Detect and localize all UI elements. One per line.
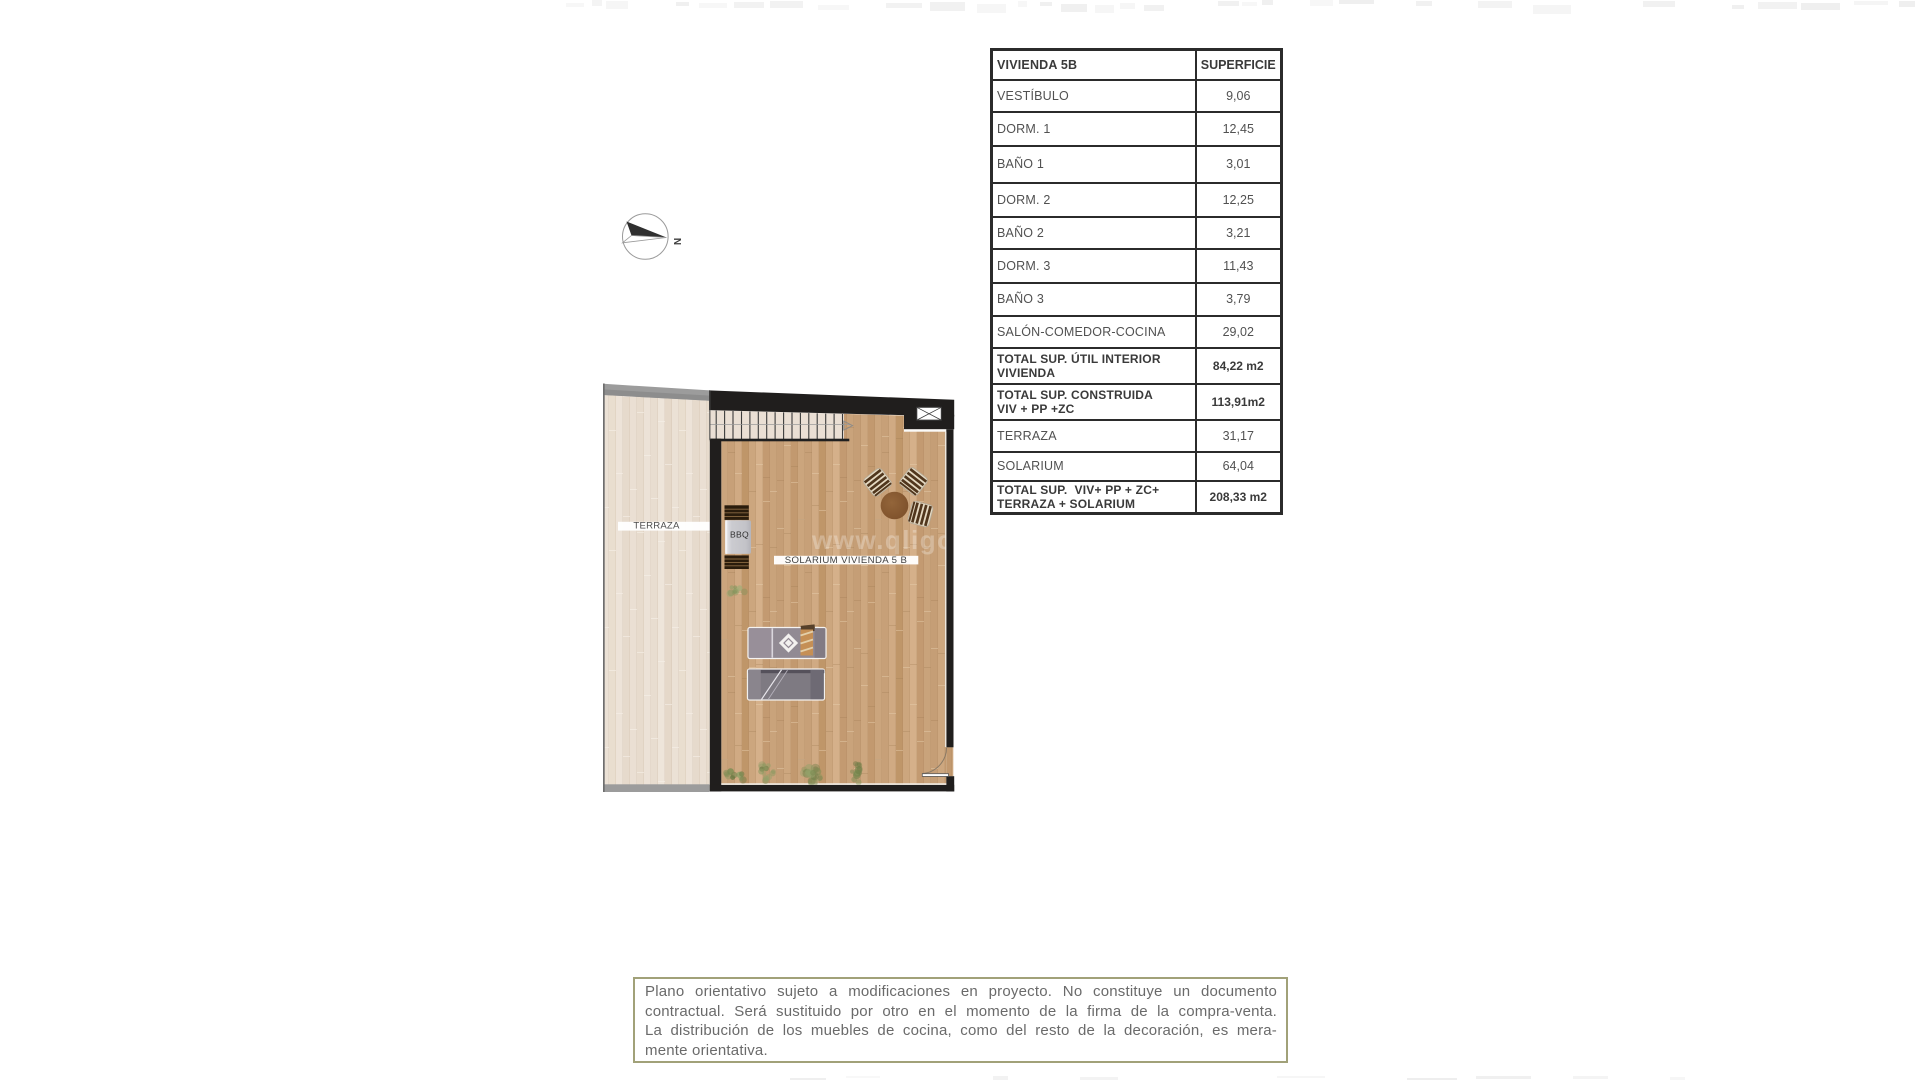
svg-text:SOLARIUM VIVIENDA 5 B: SOLARIUM VIVIENDA 5 B [785, 555, 908, 566]
svg-text:TERRAZA: TERRAZA [633, 521, 680, 532]
svg-text:N: N [671, 238, 682, 245]
svg-text:BBQ: BBQ [730, 530, 749, 540]
svg-text:www.qligcnt: www.qligcnt [811, 525, 981, 555]
